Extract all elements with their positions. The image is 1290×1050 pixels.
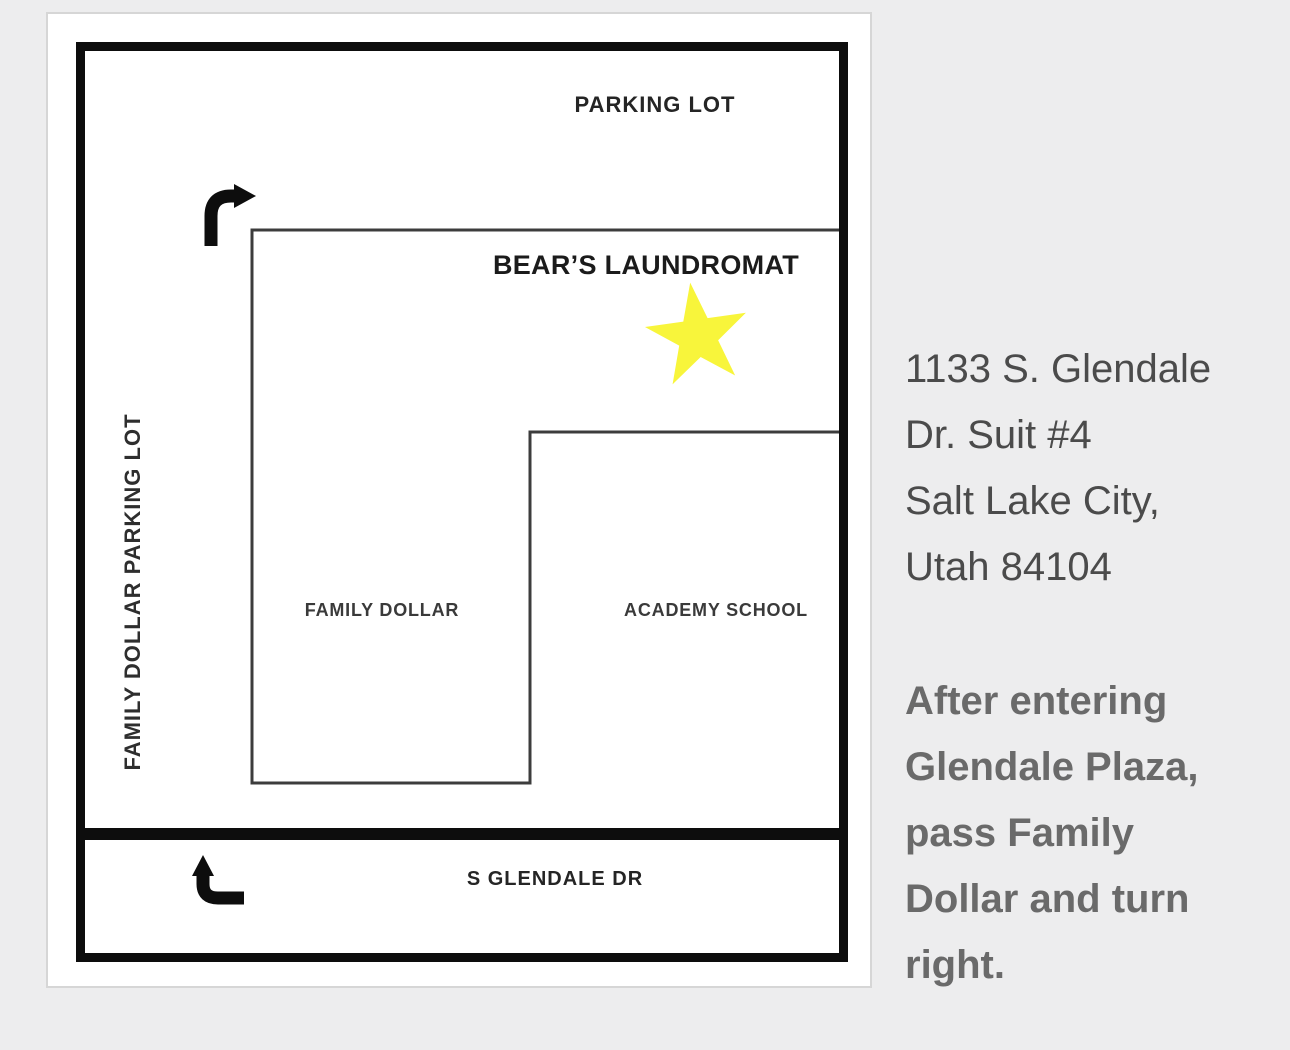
road-bar [85,828,839,840]
bears-laundromat-label: BEAR’S LAUNDROMAT [476,250,816,281]
map-figure-card: PARKING LOT BEAR’S LAUNDROMAT FAMILY DOL… [46,12,872,988]
address-line: Salt Lake City, [905,468,1275,534]
address-line: Dr. Suit #4 [905,402,1275,468]
turn-right-arrow-icon [198,180,260,246]
academy-school-label: ACADEMY SCHOOL [616,600,816,621]
address-block: 1133 S. Glendale Dr. Suit #4 Salt Lake C… [905,336,1275,600]
directions-line: After entering [905,668,1275,734]
directions-line: right. [905,932,1275,998]
family-dollar-parking-lot-label: FAMILY DOLLAR PARKING LOT [120,413,146,770]
turn-up-arrow-icon [188,850,248,906]
address-line: 1133 S. Glendale [905,336,1275,402]
directions-line: pass Family [905,800,1275,866]
parking-lot-label: PARKING LOT [530,92,780,118]
page: PARKING LOT BEAR’S LAUNDROMAT FAMILY DOL… [0,0,1290,1050]
s-glendale-dr-label: S GLENDALE DR [435,868,675,891]
star-shape [640,276,755,388]
directions-block: After entering Glendale Plaza, pass Fami… [905,668,1275,998]
directions-line: Dollar and turn [905,866,1275,932]
site-map: PARKING LOT BEAR’S LAUNDROMAT FAMILY DOL… [76,42,848,962]
family-dollar-label: FAMILY DOLLAR [282,600,482,621]
directions-line: Glendale Plaza, [905,734,1275,800]
address-line: Utah 84104 [905,534,1275,600]
location-star-icon [639,274,756,388]
